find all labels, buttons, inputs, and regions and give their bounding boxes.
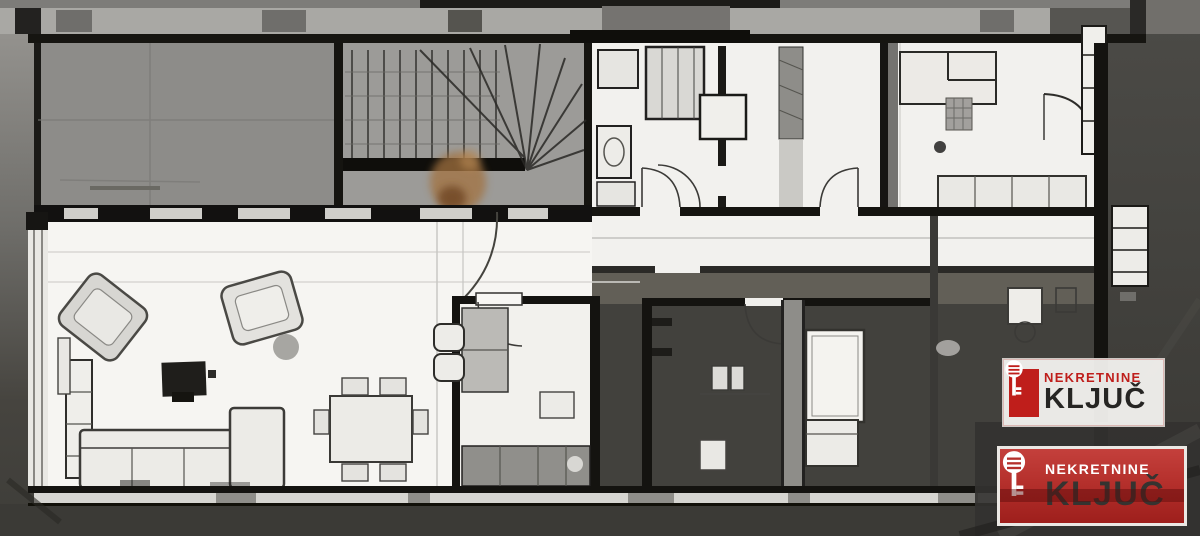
key-tile [1006, 458, 1040, 514]
smudge [934, 141, 946, 153]
agency-name: NEKRETNINE [1045, 462, 1165, 476]
wardrobe [806, 330, 864, 422]
corridor-floor [592, 216, 1094, 268]
rug [936, 340, 960, 356]
kitchen [452, 293, 600, 490]
kitchen-table [540, 392, 574, 418]
watermark-badge-red: NEKRETNINE KLJUČ [997, 446, 1187, 526]
bath-counter [700, 95, 746, 139]
left-window-column [26, 212, 48, 490]
lower-left-wall [642, 300, 652, 490]
outer-right-wall-top [1094, 43, 1108, 233]
bath-cabinet [598, 50, 638, 88]
kitchen-door-leaf [476, 293, 522, 305]
badge-text: NEKRETNINE KLJUČ [1044, 371, 1146, 414]
north-wall-thick [570, 30, 750, 44]
gray-partition [781, 300, 805, 490]
stairwell-left-wall [334, 43, 343, 213]
south-terrace-window-band [34, 205, 592, 222]
sink [597, 182, 635, 206]
coffee-table [273, 334, 299, 360]
strip-right-cap [1146, 0, 1200, 34]
bed [806, 420, 858, 466]
stairwell [334, 43, 594, 213]
emblem [946, 98, 972, 130]
floor-plan-screenshot: NEKRETNINE KLJUČ NEKRETNINE KLJUČ [0, 0, 1200, 536]
key-icon [1003, 359, 1025, 399]
kitchen-sink [567, 456, 583, 472]
dining-table [330, 396, 412, 462]
desk [1008, 288, 1042, 324]
terrace [34, 43, 338, 213]
key-icon [1000, 449, 1028, 501]
key-tile [1009, 369, 1039, 417]
shower [646, 47, 704, 119]
terrace-smudge [90, 186, 160, 190]
mid-right-wall [930, 216, 938, 490]
terrace-left-wall [34, 43, 41, 213]
external-window-marker [1112, 206, 1148, 301]
watermark-badge-light: NEKRETNINE KLJUČ [1002, 358, 1165, 427]
balcony-strip [0, 0, 1200, 44]
brand-name: KLJUČ [1044, 385, 1146, 414]
toilet [597, 126, 631, 178]
upper-rooms [592, 26, 1108, 233]
badge-text: NEKRETNINE KLJUČ [1045, 462, 1165, 511]
chaise [230, 408, 284, 488]
brand-name: KLJUČ [1045, 477, 1165, 511]
